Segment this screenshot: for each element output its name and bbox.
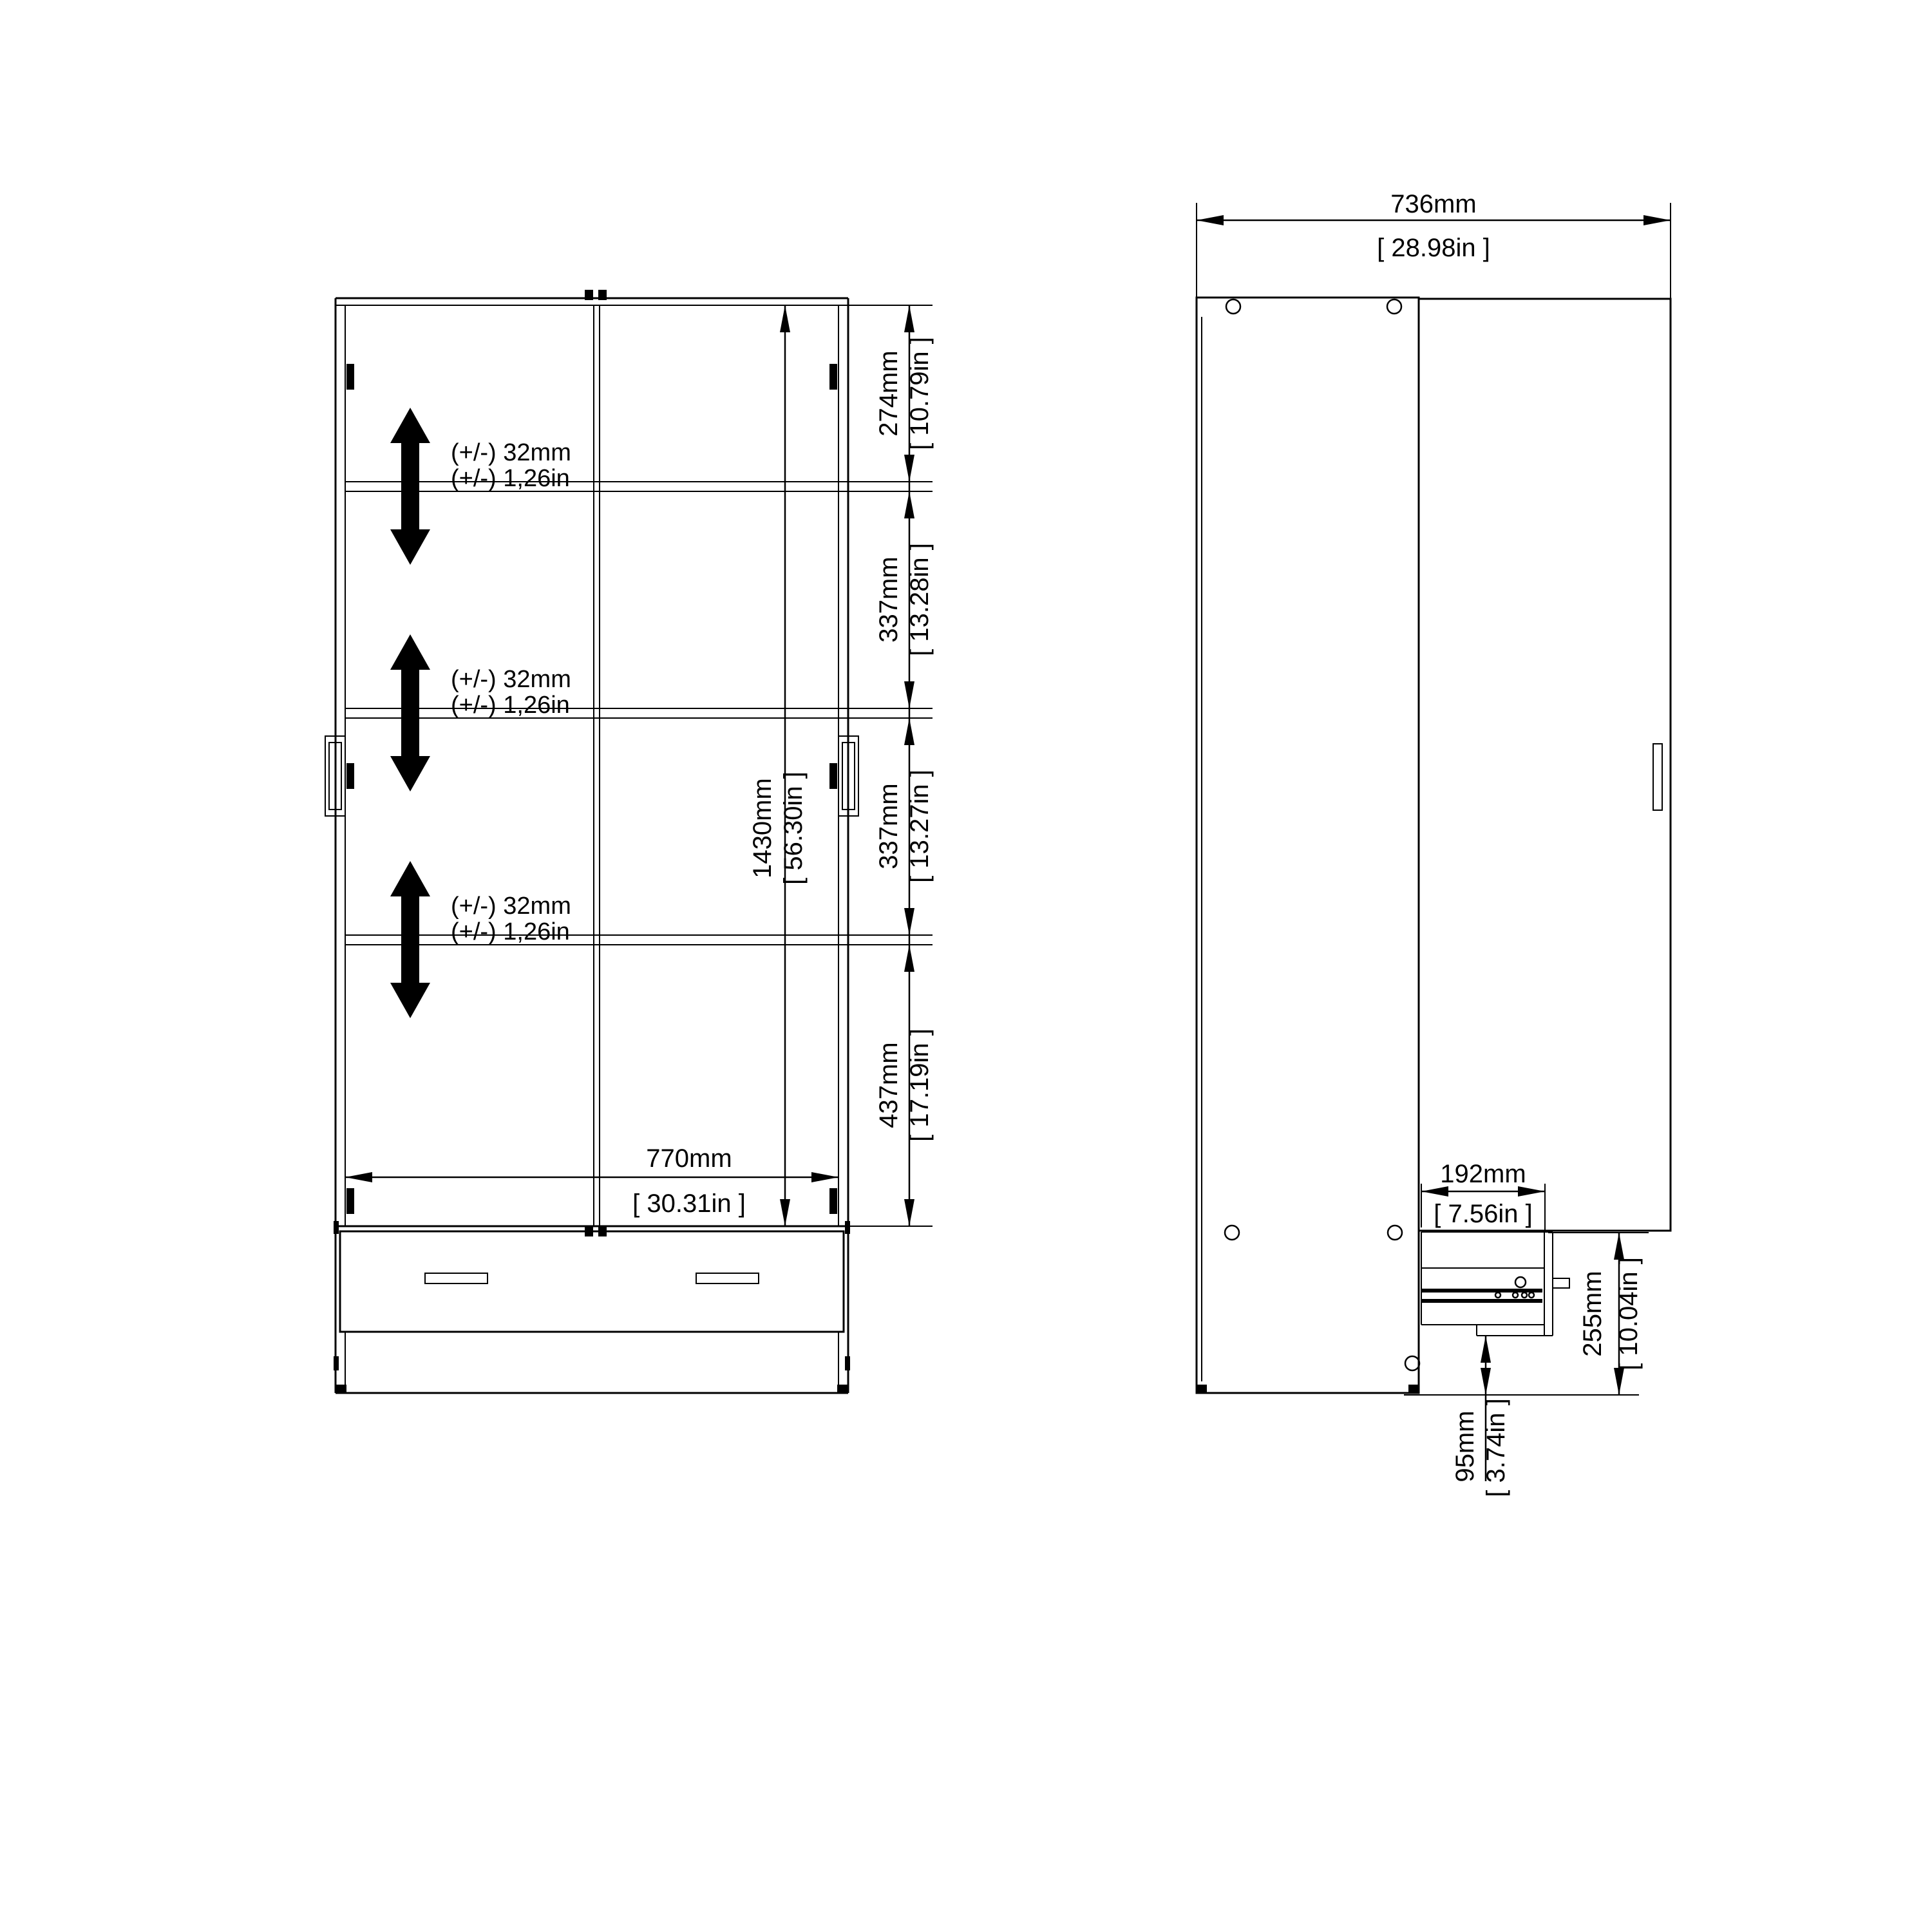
front-drawer	[336, 1231, 848, 1394]
foot-pad	[1408, 1385, 1419, 1394]
up-down-arrow-icon	[390, 861, 430, 1018]
drawer-handle-slot-left	[425, 1273, 488, 1283]
foot-pad	[1197, 1385, 1207, 1394]
dim-337a-in: [ 13.28in ]	[905, 543, 934, 656]
dim-95: 95mm [ 3.74in ]	[1451, 1336, 1510, 1497]
drawer-front	[340, 1231, 844, 1332]
hinge-mark	[829, 364, 837, 390]
side-door-panel	[1419, 299, 1671, 1231]
dim-437-in: [ 17.19in ]	[905, 1028, 934, 1142]
dim-1430-mm: 1430mm	[748, 778, 777, 878]
screw-hole	[1225, 1226, 1239, 1240]
tolerance-label-mm: (+/-) 32mm	[451, 893, 571, 920]
dim-337b-mm: 337mm	[875, 783, 903, 869]
side-drawer-assembly	[1421, 1232, 1569, 1336]
shelf-adjust-arrows: (+/-) 32mm (+/-) 1,26in (+/-) 32mm (+/-)…	[390, 408, 571, 1018]
dim-255-in: [ 10.04in ]	[1615, 1257, 1643, 1370]
dim-770-mm: 770mm	[646, 1144, 732, 1173]
hinge-mark	[346, 1188, 354, 1214]
dim-255: 255mm [ 10.04in ]	[1548, 1233, 1649, 1395]
slide-roller-small	[1513, 1293, 1518, 1298]
tolerance-label-in: (+/-) 1,26in	[451, 692, 570, 719]
foot-pad	[837, 1385, 848, 1394]
edge-fitting-mark	[334, 1221, 339, 1234]
dim-255-mm: 255mm	[1578, 1271, 1607, 1356]
dim-274-in: [ 10.79in ]	[905, 337, 934, 450]
door-handle-slot	[1653, 744, 1662, 810]
tolerance-label-mm: (+/-) 32mm	[451, 666, 571, 693]
up-down-arrow-icon	[390, 408, 430, 565]
edge-fitting-mark	[845, 1221, 850, 1234]
door-top-pivot-left	[585, 290, 593, 300]
side-view: 736mm [ 28.98in ] 192mm [ 7.56in ] 255mm…	[1197, 190, 1671, 1497]
door-top-pivot-right	[598, 290, 607, 300]
slide-roller-small	[1495, 1293, 1501, 1298]
slide-roller-small	[1529, 1293, 1534, 1298]
wardrobe-technical-drawing: (+/-) 32mm (+/-) 1,26in (+/-) 32mm (+/-)…	[0, 0, 1932, 1932]
dim-95-in: [ 3.74in ]	[1482, 1398, 1510, 1497]
up-down-arrow-icon	[390, 634, 430, 791]
drawing-page: (+/-) 32mm (+/-) 1,26in (+/-) 32mm (+/-)…	[0, 0, 1932, 1932]
edge-fitting-mark	[334, 1356, 339, 1370]
dim-770-in: [ 30.31in ]	[632, 1189, 746, 1218]
dim-192-in: [ 7.56in ]	[1434, 1200, 1532, 1228]
drawer-slide-rail	[1421, 1299, 1542, 1303]
dim-274-mm: 274mm	[875, 350, 903, 436]
dim-192: 192mm [ 7.56in ]	[1421, 1160, 1545, 1230]
dim-192-mm: 192mm	[1440, 1160, 1526, 1188]
foot-pad	[336, 1385, 346, 1394]
dim-770: 770mm [ 30.31in ]	[345, 1144, 838, 1218]
slide-bracket	[1553, 1278, 1569, 1288]
dim-chain-right: 274mm [ 10.79in ] 337mm [ 13.28in ] 337m…	[838, 305, 934, 1226]
drawer-handle-slot-right	[696, 1273, 759, 1283]
slide-roller	[1515, 1277, 1526, 1287]
screw-hole	[1226, 299, 1240, 314]
dim-736-mm: 736mm	[1390, 190, 1476, 218]
dim-337a-mm: 337mm	[875, 556, 903, 642]
dim-337b-in: [ 13.27in ]	[905, 770, 934, 883]
hinge-mark	[346, 763, 354, 789]
screw-hole	[1388, 1226, 1402, 1240]
dim-736-in: [ 28.98in ]	[1377, 234, 1490, 262]
side-back-panel	[1197, 298, 1419, 1394]
dim-95-mm: 95mm	[1451, 1410, 1479, 1482]
hinge-mark	[829, 1188, 837, 1214]
slide-roller-small	[1522, 1293, 1527, 1298]
dim-1430-in: [ 56.30in ]	[779, 772, 808, 885]
dim-437-mm: 437mm	[875, 1042, 903, 1128]
screw-hole	[1405, 1356, 1419, 1370]
dim-1430: 1430mm [ 56.30in ]	[748, 305, 808, 1226]
dim-736: 736mm [ 28.98in ]	[1197, 190, 1671, 309]
tolerance-label-mm: (+/-) 32mm	[451, 439, 571, 466]
hinge-mark	[346, 364, 354, 390]
hinge-mark	[829, 763, 837, 789]
screw-hole	[1387, 299, 1401, 314]
tolerance-label-in: (+/-) 1,26in	[451, 918, 570, 945]
edge-fitting-mark	[845, 1356, 850, 1370]
front-view: (+/-) 32mm (+/-) 1,26in (+/-) 32mm (+/-)…	[325, 290, 934, 1394]
tolerance-label-in: (+/-) 1,26in	[451, 465, 570, 492]
